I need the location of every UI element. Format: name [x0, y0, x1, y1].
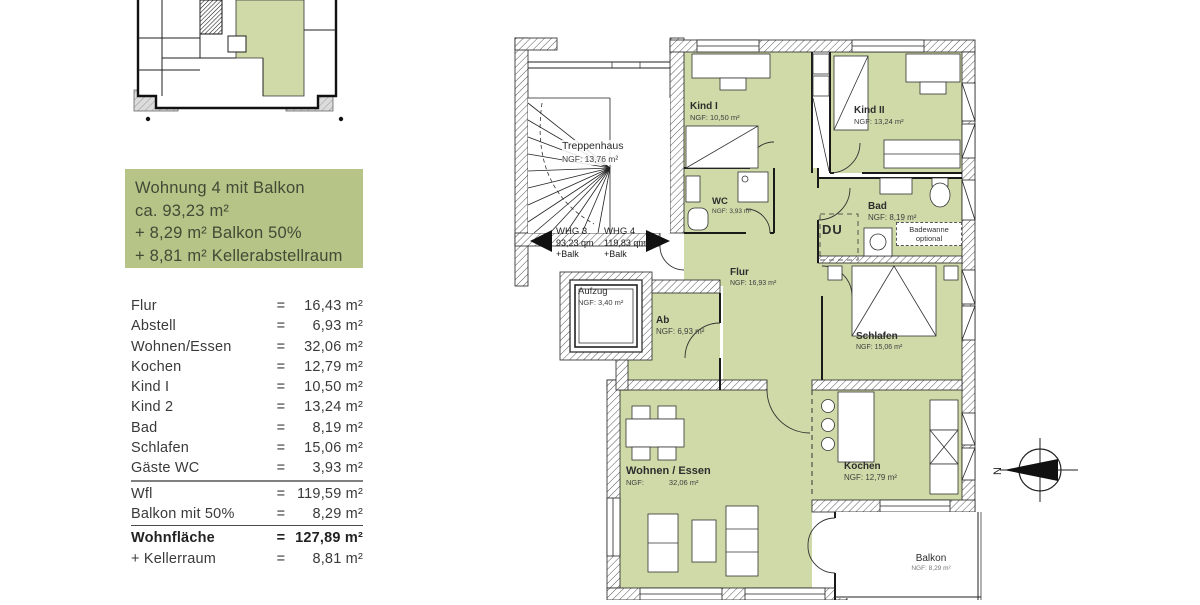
label-badewanne-optional: Badewanne optional	[896, 222, 962, 246]
chair	[658, 406, 676, 419]
double-bed	[852, 266, 936, 336]
floorplan-drawing	[512, 28, 982, 600]
dining-table	[626, 419, 684, 447]
toilet	[688, 208, 708, 230]
coffee-table	[692, 520, 716, 562]
burner	[822, 438, 835, 451]
table-row: Schlafen=15,06 m²	[131, 438, 363, 458]
table-row: Kind I=10,50 m²	[131, 377, 363, 397]
elevator-shaft	[570, 280, 642, 352]
sink	[880, 178, 912, 194]
north-arrow	[1004, 459, 1058, 481]
table-row: Wohnen/Essen=32,06 m²	[131, 337, 363, 357]
kitchen-unit	[930, 464, 958, 494]
desk	[906, 54, 960, 82]
sink	[686, 176, 700, 202]
main-floorplan: Treppenhaus NGF: 13,76 m² Aufzug NGF: 3,…	[512, 28, 982, 600]
overview-elevator	[228, 36, 246, 52]
burner	[822, 419, 835, 432]
info-balcony: + 8,29 m² Balkon 50%	[135, 222, 363, 245]
nightstand	[828, 266, 842, 280]
table-row: Balkon mit 50%=8,29 m²	[131, 504, 363, 526]
table-row: Bad=8,19 m²	[131, 418, 363, 438]
info-title: Wohnung 4 mit Balkon	[135, 177, 363, 200]
balcony	[835, 512, 981, 600]
burner	[822, 400, 835, 413]
label-whg4: WHG 4 119,83 qm +Balk	[604, 226, 646, 261]
shower	[738, 172, 768, 202]
table-row-total: Wohnfläche=127,89 m²	[131, 528, 363, 548]
chair	[920, 82, 946, 94]
info-area: ca. 93,23 m²	[135, 200, 363, 223]
table-row: + Kellerraum=8,81 m²	[131, 549, 363, 569]
wardrobe	[813, 76, 829, 96]
north-compass-icon: N	[990, 432, 1080, 508]
chair	[720, 78, 746, 90]
apartment-info-box: Wohnung 4 mit Balkon ca. 93,23 m² + 8,29…	[125, 169, 363, 268]
overview-building	[134, 0, 343, 121]
table-row: Kochen=12,79 m²	[131, 357, 363, 377]
chair	[658, 447, 676, 460]
table-row: Abstell=6,93 m²	[131, 316, 363, 336]
wardrobe	[813, 54, 829, 74]
table-row: Flur=16,43 m²	[131, 296, 363, 316]
sofa	[726, 506, 758, 576]
nightstand	[944, 266, 958, 280]
room-area-table: Flur=16,43 m² Abstell=6,93 m² Wohnen/Ess…	[131, 296, 363, 569]
overview-mini-floorplan	[128, 0, 358, 130]
north-letter: N	[992, 467, 1004, 475]
desk	[692, 54, 770, 78]
chair	[632, 447, 650, 460]
label-whg3: WHG 3 93,23 qm +Balk	[556, 226, 594, 261]
table-row: Gäste WC=3,93 m²	[131, 458, 363, 481]
kitchen-counter	[838, 392, 874, 462]
table-row: Wfl=119,59 m²	[131, 484, 363, 504]
stairwell	[528, 62, 670, 233]
table-row: Kind 2=13,24 m²	[131, 397, 363, 417]
chair	[632, 406, 650, 419]
info-cellar: + 8,81 m² Kellerabstellraum	[135, 245, 363, 268]
overview-stairs	[200, 0, 222, 34]
kitchen-unit	[930, 400, 958, 430]
